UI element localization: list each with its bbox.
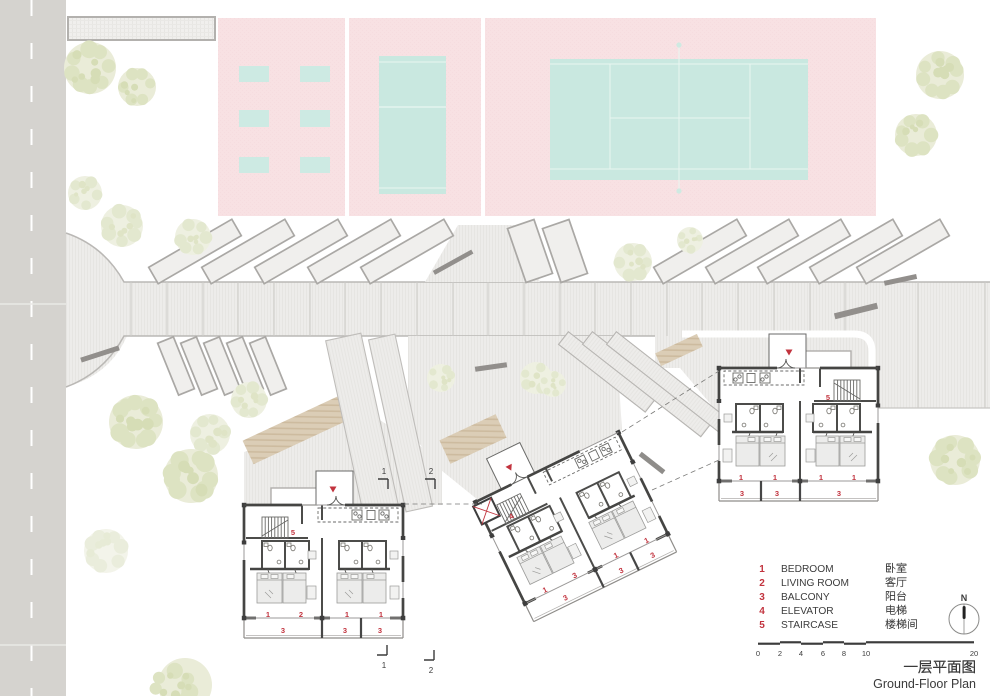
svg-text:1: 1 — [852, 473, 856, 482]
svg-text:1: 1 — [382, 467, 387, 476]
svg-text:5: 5 — [291, 528, 295, 537]
svg-text:20: 20 — [970, 649, 978, 658]
svg-text:3: 3 — [740, 489, 744, 498]
svg-text:2: 2 — [759, 578, 765, 589]
svg-text:1: 1 — [382, 661, 387, 670]
svg-text:1: 1 — [379, 610, 383, 619]
svg-text:1: 1 — [773, 473, 777, 482]
svg-text:2: 2 — [429, 666, 434, 675]
svg-text:2: 2 — [429, 467, 434, 476]
svg-text:4: 4 — [759, 606, 765, 617]
svg-text:N: N — [961, 593, 968, 603]
svg-text:8: 8 — [842, 649, 846, 658]
svg-text:2: 2 — [299, 610, 303, 619]
svg-text:3: 3 — [759, 592, 765, 603]
svg-text:5: 5 — [759, 620, 765, 631]
svg-text:1: 1 — [345, 610, 349, 619]
svg-text:5: 5 — [826, 393, 830, 402]
svg-text:STAIRCASE: STAIRCASE — [781, 620, 838, 631]
svg-text:3: 3 — [378, 626, 382, 635]
svg-text:BALCONY: BALCONY — [781, 592, 830, 603]
svg-text:LIVING ROOM: LIVING ROOM — [781, 578, 849, 589]
svg-text:1: 1 — [819, 473, 823, 482]
svg-text:3: 3 — [837, 489, 841, 498]
svg-text:Ground-Floor Plan: Ground-Floor Plan — [873, 677, 976, 691]
svg-text:3: 3 — [281, 626, 285, 635]
svg-text:ELEVATOR: ELEVATOR — [781, 606, 834, 617]
svg-text:BEDROOM: BEDROOM — [781, 564, 834, 575]
svg-text:1: 1 — [759, 564, 765, 575]
svg-text:1: 1 — [739, 473, 743, 482]
svg-text:4: 4 — [799, 649, 803, 658]
svg-text:2: 2 — [778, 649, 782, 658]
svg-text:0: 0 — [756, 649, 760, 658]
svg-text:10: 10 — [862, 649, 870, 658]
svg-text:3: 3 — [343, 626, 347, 635]
svg-text:3: 3 — [775, 489, 779, 498]
svg-text:6: 6 — [821, 649, 825, 658]
svg-text:1: 1 — [266, 610, 270, 619]
